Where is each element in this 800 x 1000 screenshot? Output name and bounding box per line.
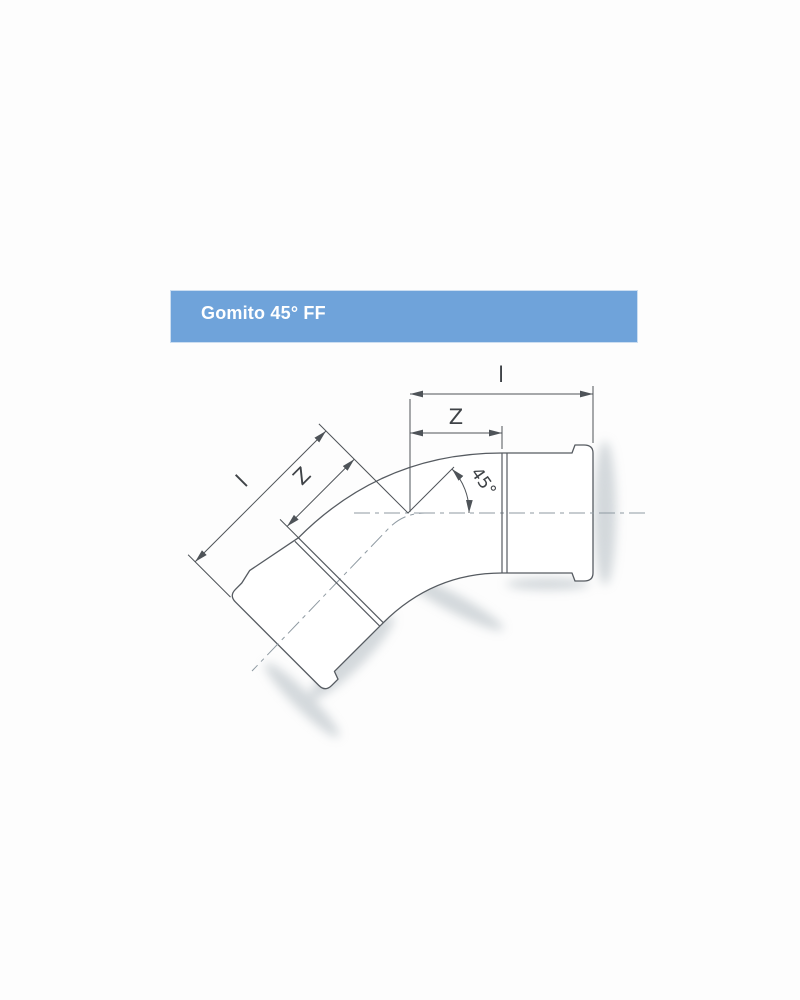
extension-line-shoulder-diagonal [280,519,300,539]
dimension-label-z-horizontal: Z [449,405,463,429]
extension-line-mouth-diagonal [188,555,230,597]
fitting-body [232,445,593,689]
catalog-page: Gomito 45° FF [0,0,800,1000]
dimension-label-l-horizontal: l [498,363,504,387]
elbow-technical-drawing: 45° l Z l Z [0,0,800,1000]
dimension-label-l-diagonal: l [231,470,252,491]
dimension-label-z-diagonal: Z [288,462,315,489]
